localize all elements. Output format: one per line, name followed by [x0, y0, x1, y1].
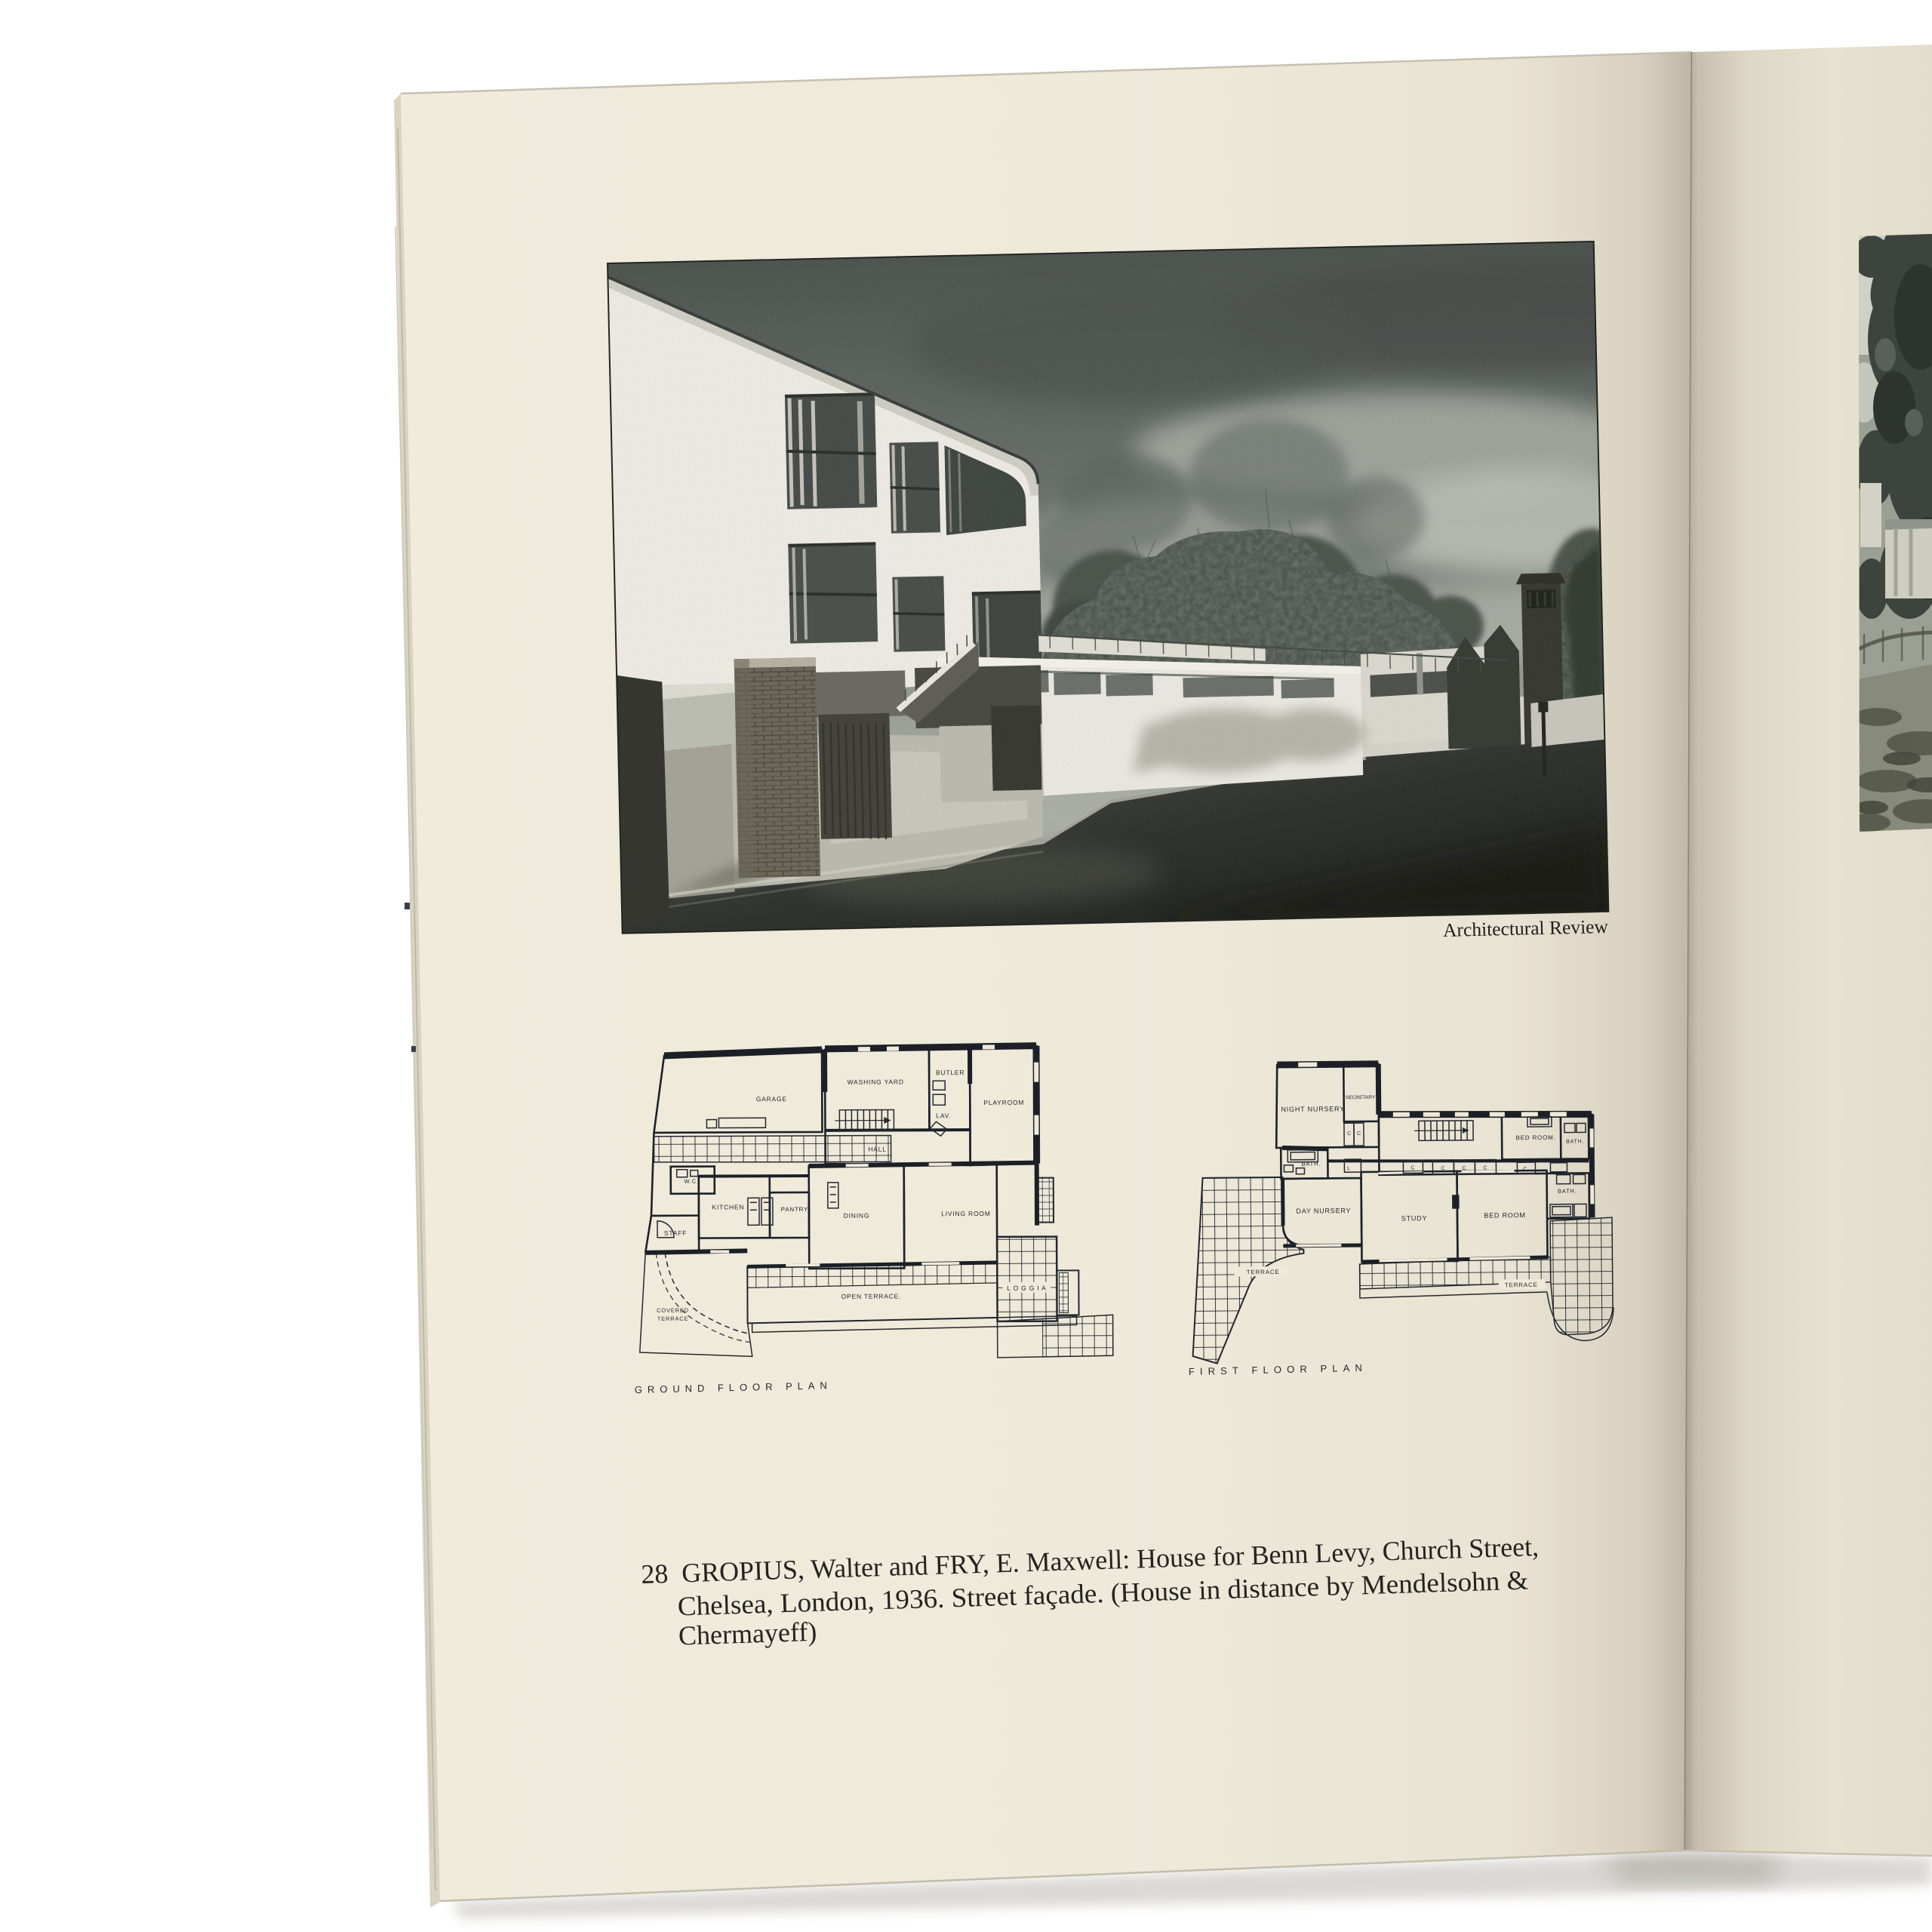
svg-text:BUTLER: BUTLER	[936, 1069, 964, 1076]
svg-text:STUDY: STUDY	[1401, 1214, 1428, 1222]
svg-text:TERRACE: TERRACE	[1247, 1269, 1280, 1275]
svg-text:C: C	[1441, 1166, 1445, 1171]
svg-text:DINING: DINING	[844, 1212, 870, 1220]
svg-text:BED ROOM.: BED ROOM.	[1516, 1134, 1556, 1141]
svg-text:PLAYROOM: PLAYROOM	[983, 1099, 1024, 1106]
svg-text:KITCHEN: KITCHEN	[712, 1203, 744, 1211]
svg-text:W.C: W.C	[684, 1178, 697, 1185]
svg-text:Architectural Review: Architectural Review	[1443, 915, 1609, 941]
svg-text:TERRACE: TERRACE	[1505, 1281, 1538, 1288]
svg-text:C: C	[1462, 1166, 1466, 1171]
svg-text:BED ROOM: BED ROOM	[1484, 1211, 1525, 1219]
svg-text:COVERED: COVERED	[657, 1307, 689, 1314]
svg-text:PANTRY: PANTRY	[781, 1206, 809, 1213]
svg-text:HALL: HALL	[868, 1146, 887, 1153]
svg-text:BATH.: BATH.	[1558, 1188, 1577, 1195]
svg-text:L O G G I A: L O G G I A	[1007, 1284, 1046, 1292]
svg-text:C: C	[1411, 1165, 1415, 1171]
svg-text:DAY NURSERY: DAY NURSERY	[1296, 1207, 1351, 1215]
svg-text:SECRETARY: SECRETARY	[1346, 1095, 1376, 1100]
svg-text:C: C	[1357, 1131, 1361, 1137]
svg-text:NIGHT NURSERY: NIGHT NURSERY	[1281, 1105, 1345, 1113]
svg-text:L: L	[1347, 1166, 1351, 1171]
svg-text:BATH.: BATH.	[1302, 1160, 1321, 1167]
svg-text:OPEN TERRACE.: OPEN TERRACE.	[841, 1292, 902, 1300]
svg-text:BATH.: BATH.	[1566, 1139, 1584, 1144]
svg-text:C: C	[1347, 1131, 1352, 1137]
svg-text:TERRACE: TERRACE	[657, 1315, 688, 1322]
svg-text:GARAGE: GARAGE	[756, 1095, 787, 1103]
svg-text:Chermayeff): Chermayeff)	[678, 1617, 817, 1651]
svg-text:STAFF: STAFF	[664, 1229, 687, 1237]
svg-text:LIVING ROOM: LIVING ROOM	[941, 1210, 991, 1217]
svg-text:C.: C.	[1523, 1167, 1530, 1172]
svg-text:C: C	[1483, 1166, 1487, 1171]
svg-text:WASHING YARD: WASHING YARD	[848, 1078, 904, 1085]
svg-text:LAV.: LAV.	[936, 1112, 951, 1119]
